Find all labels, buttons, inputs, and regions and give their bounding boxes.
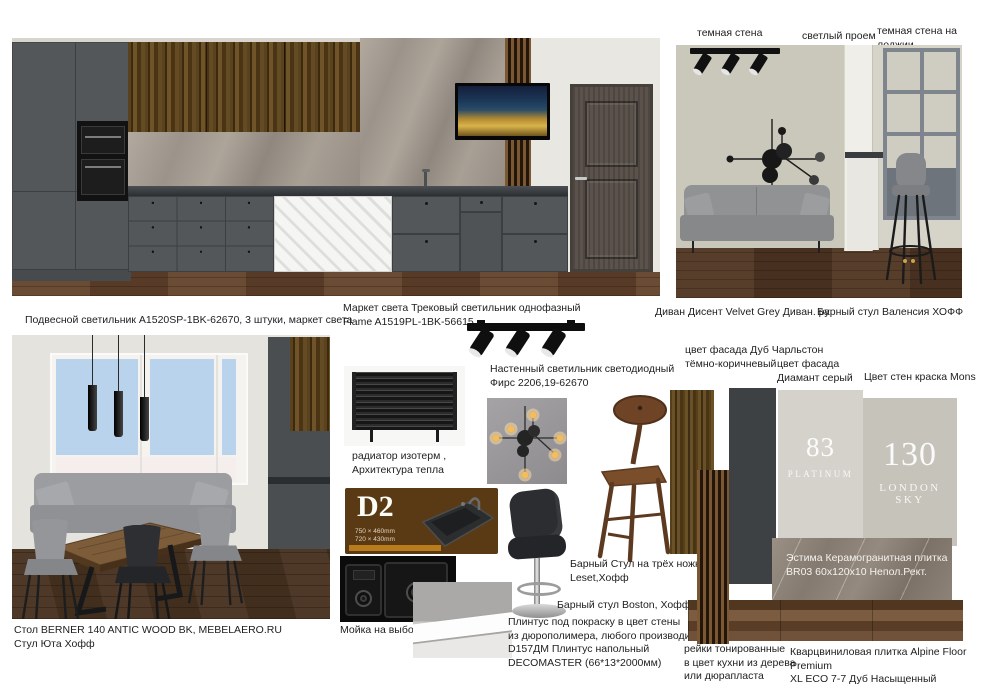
pendant-cylinder — [114, 391, 123, 437]
caption-tile: Эстима Керамогранитная плитка BR03 60x12… — [786, 552, 948, 579]
kitchen-countertop — [128, 186, 568, 196]
wall-light-photo — [487, 398, 567, 484]
paint-name: LONDON SKY — [863, 482, 957, 506]
sofa-leg — [818, 241, 820, 253]
oven-bottom — [81, 159, 125, 195]
kitchen-wood-column — [330, 42, 363, 140]
shelf-divider-h — [887, 90, 956, 94]
door-panel — [585, 179, 638, 259]
slat-sample — [697, 470, 729, 644]
paint-sample-london-sky: 130 LONDON SKY — [863, 398, 957, 546]
caption-vinyl: Кварцвиниловая плитка Alpine Floor Premi… — [790, 646, 990, 686]
window-pane — [150, 359, 214, 455]
radiator-leg — [436, 430, 439, 442]
kitchen-cabinet-door — [460, 212, 502, 272]
tv-screen — [458, 86, 547, 136]
paint-sample-platinum: 83 PLATINUM — [778, 390, 863, 541]
sink-size-1: 750 × 460mm — [355, 528, 395, 535]
pendant-cylinder — [140, 397, 149, 441]
kitchen-faucet — [424, 172, 427, 186]
kitchen-panel-hatched — [274, 196, 392, 272]
caption-wall-paint: Цвет стен краска Mons — [864, 371, 976, 385]
stool-footrest-ring — [517, 582, 561, 596]
sink-model-label: D2 — [357, 490, 394, 524]
window-pane — [56, 359, 138, 455]
pendant-cylinder — [88, 385, 97, 431]
caption-sofa: Диван Дисент Velvet Grey Диван. ру — [655, 306, 830, 320]
oven-handle — [85, 136, 121, 138]
cabinet-plinth — [13, 269, 131, 281]
caption-facade-gray: цвет фасада Диамант серый — [777, 358, 853, 385]
sink-soap-tray — [353, 570, 375, 580]
window-mullion — [216, 355, 218, 481]
tile-sample-estima: Эстима Керамогранитная плитка BR03 60x12… — [772, 538, 952, 602]
tv — [455, 83, 550, 140]
paint-number: 130 — [863, 436, 957, 474]
dining-chair-gray — [18, 519, 82, 619]
dining-chair-black — [108, 525, 176, 619]
caption-stool-boston: Барный стул Boston, Хофф — [557, 599, 690, 613]
oven-top — [81, 126, 125, 154]
kitchen-base-drawers-left — [128, 196, 274, 272]
kitchen-drawer — [502, 196, 568, 234]
sofa — [678, 183, 836, 259]
stool-seat — [507, 534, 566, 560]
kitchen-backsplash-marble — [128, 132, 360, 188]
caption-sink: Мойка на выбор — [340, 624, 420, 638]
kitchen-drawer — [460, 196, 502, 212]
radiator-body — [352, 372, 457, 430]
sink-bowl-small — [345, 564, 382, 616]
kitchen-elevation-render — [12, 38, 660, 296]
upper-divider — [284, 42, 285, 132]
paint-number: 83 — [778, 432, 863, 463]
track-light-icon — [688, 47, 784, 89]
radiator-photo — [344, 366, 465, 446]
sink-card-accent-bar — [349, 545, 441, 551]
bar-stool-valencia-icon — [879, 153, 941, 287]
kitchen-upper-wood-cabinets — [128, 42, 362, 132]
kitchen-tall-cabinets — [12, 42, 130, 280]
living-room-render — [676, 45, 962, 298]
kitchen-drawer — [502, 234, 568, 272]
window-pane — [222, 359, 236, 455]
bar-stool-leset-icon — [588, 392, 672, 562]
pendant-light — [144, 335, 145, 399]
interior-door — [570, 84, 653, 272]
facade-sample-diamond-gray — [729, 388, 776, 584]
dining-counter — [268, 477, 330, 484]
shelf-divider-h — [887, 132, 956, 136]
door-panel — [585, 101, 638, 167]
sofa-leg — [692, 241, 694, 253]
vinyl-plank-sample — [688, 600, 963, 641]
moodboard: темная стена светлый проем темная стена … — [0, 0, 990, 686]
caption-stool-valencia: Барный стул Валенсия ХОФФ — [817, 306, 963, 320]
cabinet-divider — [75, 43, 76, 281]
pendant-light — [118, 335, 119, 393]
door-handle — [575, 177, 587, 180]
radiator-leg — [370, 430, 373, 442]
annotation-light-opening: светлый проем — [802, 30, 876, 44]
caption-wall-light: Настенный светильник светодиодный Фирс 2… — [490, 363, 674, 390]
caption-radiator: радиатор изотерм , Архитектура тепла — [352, 450, 446, 477]
sink-d2-card: D2 750 × 460mm 720 × 430mm — [345, 488, 498, 554]
caption-stool-leset: Барный Стул на трёх ножках Leset,Хофф — [570, 558, 711, 585]
bar-counter-cabinet — [847, 158, 879, 250]
sofa-seat — [680, 215, 834, 241]
oven-handle — [85, 166, 121, 168]
sink-product-icon — [413, 490, 497, 552]
window — [50, 353, 248, 485]
dining-wood-panel — [290, 337, 330, 431]
plinth-photo — [413, 582, 512, 658]
annotation-dark-wall: темная стена — [697, 27, 762, 41]
caption-pendant-light: Подвесной светильник A1520SP-1BK-62670, … — [25, 314, 352, 328]
paint-name: PLATINUM — [778, 469, 863, 479]
wall-light-molecule-icon — [487, 398, 567, 484]
faucet-spout — [422, 169, 430, 172]
caption-slats: рейки тонированные в цвет кухни из дерев… — [684, 643, 796, 684]
sink-size-2: 720 × 430mm — [355, 536, 395, 543]
dining-chair-gray — [182, 507, 248, 607]
sink-drain — [355, 590, 372, 607]
kitchen-drawer — [392, 234, 460, 272]
pendant-light — [92, 335, 93, 387]
kitchen-drawer — [392, 196, 460, 234]
caption-table-chair: Стол BERNER 140 ANTIC WOOD BK, MEBELAERO… — [14, 624, 282, 651]
caption-plinth: Плинтус под покраску в цвет стены из дюр… — [508, 616, 712, 671]
dining-room-render — [12, 335, 330, 619]
built-in-ovens — [77, 121, 129, 201]
upper-divider — [206, 42, 207, 132]
